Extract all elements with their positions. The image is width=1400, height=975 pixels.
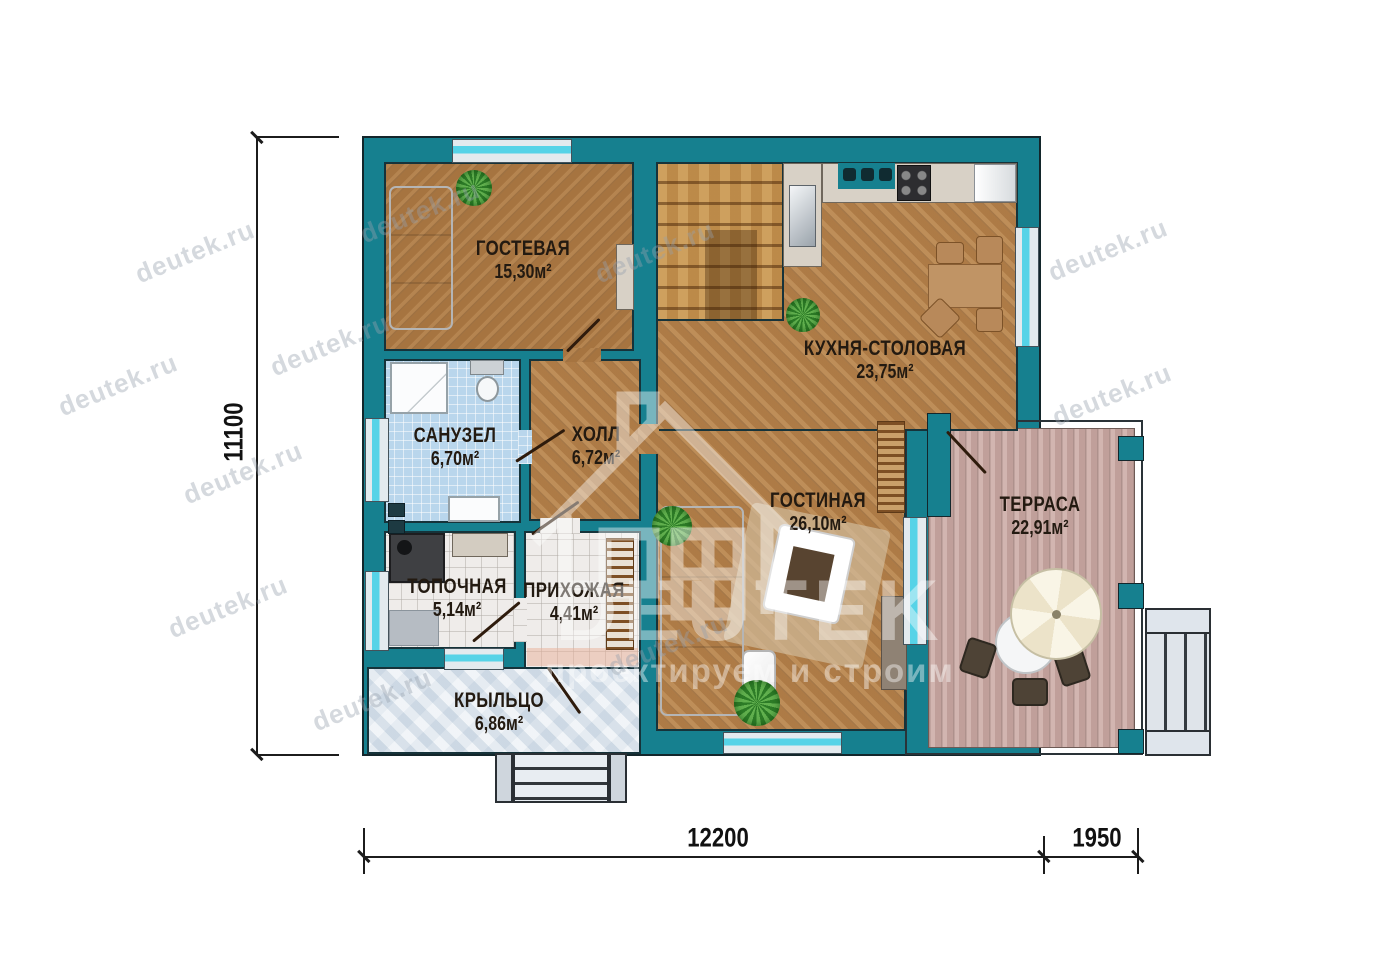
room-label-porch: КРЫЛЬЦО6,86м² <box>454 689 544 735</box>
dim-ext-b3 <box>1137 828 1139 874</box>
watermark-text: deutek.ru <box>54 347 182 423</box>
terrace-chair <box>1012 678 1048 706</box>
niche-handle-1 <box>843 168 856 181</box>
hall-living-opening <box>638 424 659 454</box>
terrace-post-mid-right <box>1119 584 1143 608</box>
dining-chair <box>936 242 964 264</box>
terrace-post-bottom-right <box>1119 730 1143 753</box>
niche-handle-2 <box>861 168 874 181</box>
dining-chair <box>976 308 1003 332</box>
plant <box>734 680 780 726</box>
window-living-bottom <box>723 732 842 754</box>
room-label-hall: ХОЛЛ6,72м² <box>572 423 621 469</box>
terrace-steps <box>1145 608 1211 756</box>
boiler-burner-icon <box>397 540 412 555</box>
dim-ext-b1 <box>363 828 365 874</box>
wall-panel-icon <box>388 520 405 534</box>
plant <box>786 298 820 332</box>
kitchen-sink-icon <box>789 185 816 247</box>
porch-step-rail-right <box>609 753 627 803</box>
stove-icon <box>897 165 931 201</box>
watermark-text: deutek.ru <box>164 569 292 645</box>
dim-line-left <box>256 137 258 755</box>
boiler-shelf <box>452 533 508 557</box>
room-label-terrace: ТЕРРАСА22,91м² <box>1000 493 1081 539</box>
wall-panel-icon <box>388 503 405 517</box>
umbrella-pole-icon <box>1052 610 1061 619</box>
watermark-text: deutek.ru <box>1044 212 1172 288</box>
living-terrace-wall-chunk <box>928 414 950 516</box>
watermark-text: deutek.ru <box>131 214 259 290</box>
fridge-icon <box>974 164 1016 202</box>
shower-icon <box>390 362 448 414</box>
window-guest-top <box>452 139 572 163</box>
toilet-bowl-icon <box>476 376 499 402</box>
niche-handle-3 <box>879 168 892 181</box>
plant <box>652 506 692 546</box>
dim-width-main-label: 12200 <box>687 823 749 854</box>
porch-step-rail-left <box>495 753 513 803</box>
bath-sink-icon <box>448 496 500 522</box>
room-label-kitchen: КУХНЯ-СТОЛОВАЯ23,75м² <box>804 337 966 383</box>
window-bathroom-left <box>365 418 389 502</box>
window-living-terrace <box>903 517 927 645</box>
toilet-icon <box>470 360 504 375</box>
room-label-boiler: ТОПОЧНАЯ5,14м² <box>407 575 506 621</box>
dining-chair <box>976 236 1003 264</box>
terrace-steps-landing-bottom <box>1147 730 1209 754</box>
window-boiler-left <box>365 571 389 651</box>
terrace-post-top-right <box>1119 437 1143 460</box>
terrace-steps-treads <box>1147 634 1209 730</box>
room-label-bathroom: САНУЗЕЛ6,70м² <box>414 424 497 470</box>
dim-line-bottom <box>363 856 1139 858</box>
dim-ext-bottom-left <box>257 754 339 756</box>
room-label-guest: ГОСТЕВАЯ15,30м² <box>476 237 570 283</box>
room-label-living: ГОСТИНАЯ26,10м² <box>770 489 866 535</box>
dim-width-terrace-label: 1950 <box>1072 823 1121 854</box>
window-kitchen-right <box>1015 227 1039 347</box>
living-cabinet <box>877 421 905 513</box>
room-label-entry: ПРИХОЖАЯ4,41м² <box>523 579 625 625</box>
window-porch-wall <box>444 648 504 670</box>
porch-steps <box>513 753 609 803</box>
floor-plan: ГОСТЕВАЯ15,30м² КУХНЯ-СТОЛОВАЯ23,75м² СА… <box>0 0 1400 975</box>
dim-ext-top-left <box>257 136 339 138</box>
dim-height-label: 11100 <box>219 402 250 461</box>
terrace-steps-landing-top <box>1147 610 1209 634</box>
